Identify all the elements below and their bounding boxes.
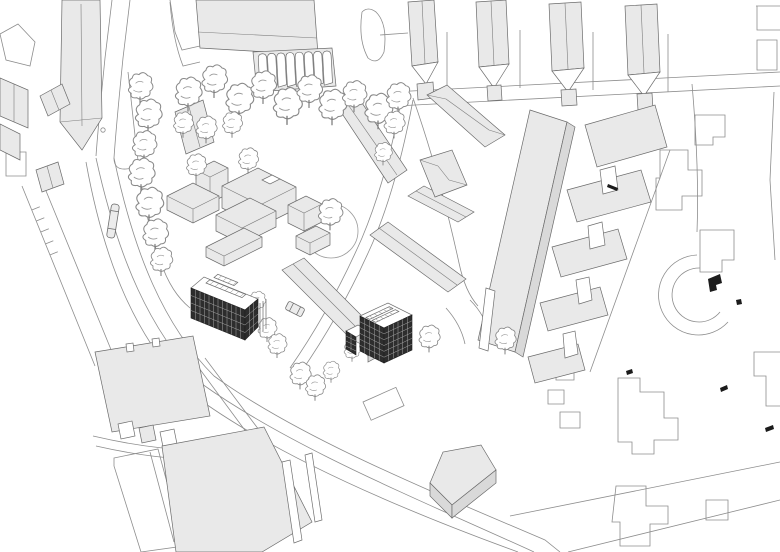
manhole <box>101 128 105 132</box>
central-cluster <box>167 161 330 266</box>
site-plan-drawing <box>0 0 780 552</box>
tree <box>323 361 340 383</box>
stair-mark-2 <box>736 299 742 305</box>
proposed-building-west <box>191 274 266 340</box>
drawing-canvas <box>0 0 780 552</box>
stair-mark-5 <box>765 425 774 432</box>
black-accents <box>607 184 774 432</box>
west-wedge-line-2 <box>44 186 112 352</box>
tree <box>318 199 343 231</box>
southeast-boundary-2 <box>568 500 780 552</box>
west-wedge-steps <box>32 207 58 255</box>
tree <box>384 111 405 138</box>
tree <box>419 325 440 352</box>
row-house-3 <box>549 2 584 106</box>
southeast-boundary-1 <box>510 462 780 516</box>
footprint-tr-1 <box>756 6 780 70</box>
north-hall <box>196 0 318 55</box>
plaza-curve-1 <box>446 308 465 344</box>
footprint-e-1 <box>700 230 734 272</box>
tree <box>202 65 228 98</box>
north-left-drive <box>170 2 200 66</box>
stair-mark-3 <box>626 369 633 375</box>
stair-mark-1 <box>708 274 722 292</box>
tree <box>251 71 277 104</box>
rowhouse-front-path <box>380 33 408 35</box>
tree <box>319 89 347 125</box>
car <box>285 301 305 317</box>
tree <box>135 99 162 134</box>
culdesac-outer <box>659 255 728 335</box>
tree <box>151 247 173 276</box>
long-gabled-building-nw <box>60 0 102 150</box>
echo-outline-top <box>170 0 200 50</box>
stair-mark-4 <box>720 385 728 392</box>
tree <box>306 375 326 401</box>
shed-outline <box>363 387 404 420</box>
tree <box>136 187 164 223</box>
west-edge-houses <box>0 78 70 192</box>
right-edge-line <box>770 92 775 260</box>
industrial-slab-1 <box>95 336 210 432</box>
left-corner-outline <box>0 24 35 66</box>
pentagon-hall <box>430 445 496 518</box>
tree <box>268 334 287 358</box>
footprint-s-1 <box>612 486 668 546</box>
gabled-slab-c <box>370 222 466 292</box>
footprint-ne-1 <box>695 115 725 145</box>
west-wedge-line-1 <box>22 186 95 366</box>
row-house-1 <box>408 0 438 100</box>
east-access <box>692 84 698 232</box>
campus-row-1 <box>585 105 667 167</box>
campus-row-4 <box>540 287 608 331</box>
existing-building-masses <box>0 0 667 552</box>
tree <box>132 131 157 163</box>
street-north-left-edge <box>114 0 130 158</box>
footprint-right-edge-1 <box>754 352 780 406</box>
tree <box>223 112 243 138</box>
culdesac-inner <box>672 268 720 322</box>
footprint-se-cross <box>618 378 678 454</box>
footprint-ne-2 <box>656 150 702 210</box>
